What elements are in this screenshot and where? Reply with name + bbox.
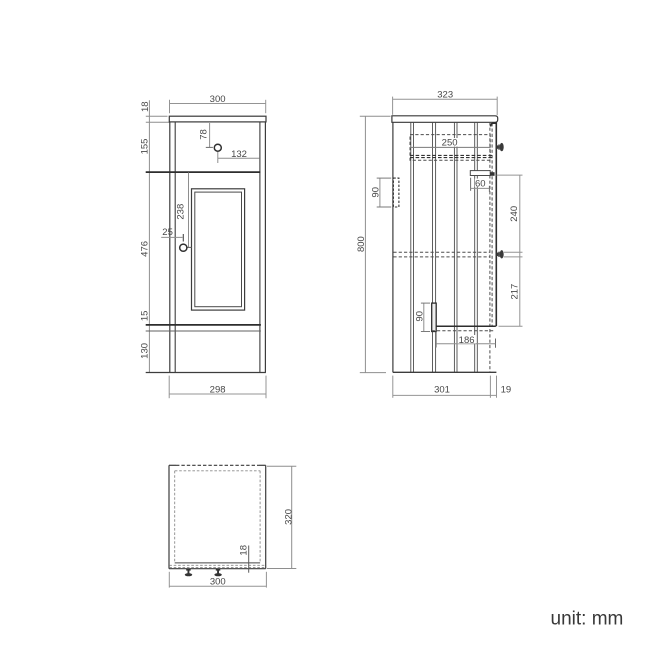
- svg-text:130: 130: [140, 343, 151, 359]
- svg-text:unit: mm: unit: mm: [551, 609, 624, 630]
- svg-text:18: 18: [140, 101, 151, 112]
- svg-text:90: 90: [414, 311, 425, 322]
- svg-text:300: 300: [210, 577, 226, 588]
- svg-text:132: 132: [231, 149, 247, 160]
- svg-text:78: 78: [198, 129, 209, 140]
- svg-text:300: 300: [210, 94, 226, 105]
- svg-text:240: 240: [509, 206, 520, 222]
- svg-text:19: 19: [501, 385, 512, 396]
- svg-text:476: 476: [140, 241, 151, 257]
- svg-text:90: 90: [370, 187, 381, 198]
- svg-text:25: 25: [162, 227, 173, 238]
- svg-text:15: 15: [140, 311, 151, 322]
- svg-text:18: 18: [239, 545, 250, 556]
- svg-text:298: 298: [210, 384, 226, 395]
- svg-text:155: 155: [140, 139, 151, 155]
- svg-text:301: 301: [434, 385, 450, 396]
- svg-text:323: 323: [437, 89, 453, 100]
- svg-text:800: 800: [356, 236, 367, 252]
- svg-text:217: 217: [509, 284, 520, 300]
- svg-text:60: 60: [475, 178, 486, 189]
- svg-text:320: 320: [283, 509, 294, 525]
- svg-text:186: 186: [459, 335, 475, 346]
- svg-text:250: 250: [442, 138, 458, 149]
- svg-text:238: 238: [175, 204, 186, 220]
